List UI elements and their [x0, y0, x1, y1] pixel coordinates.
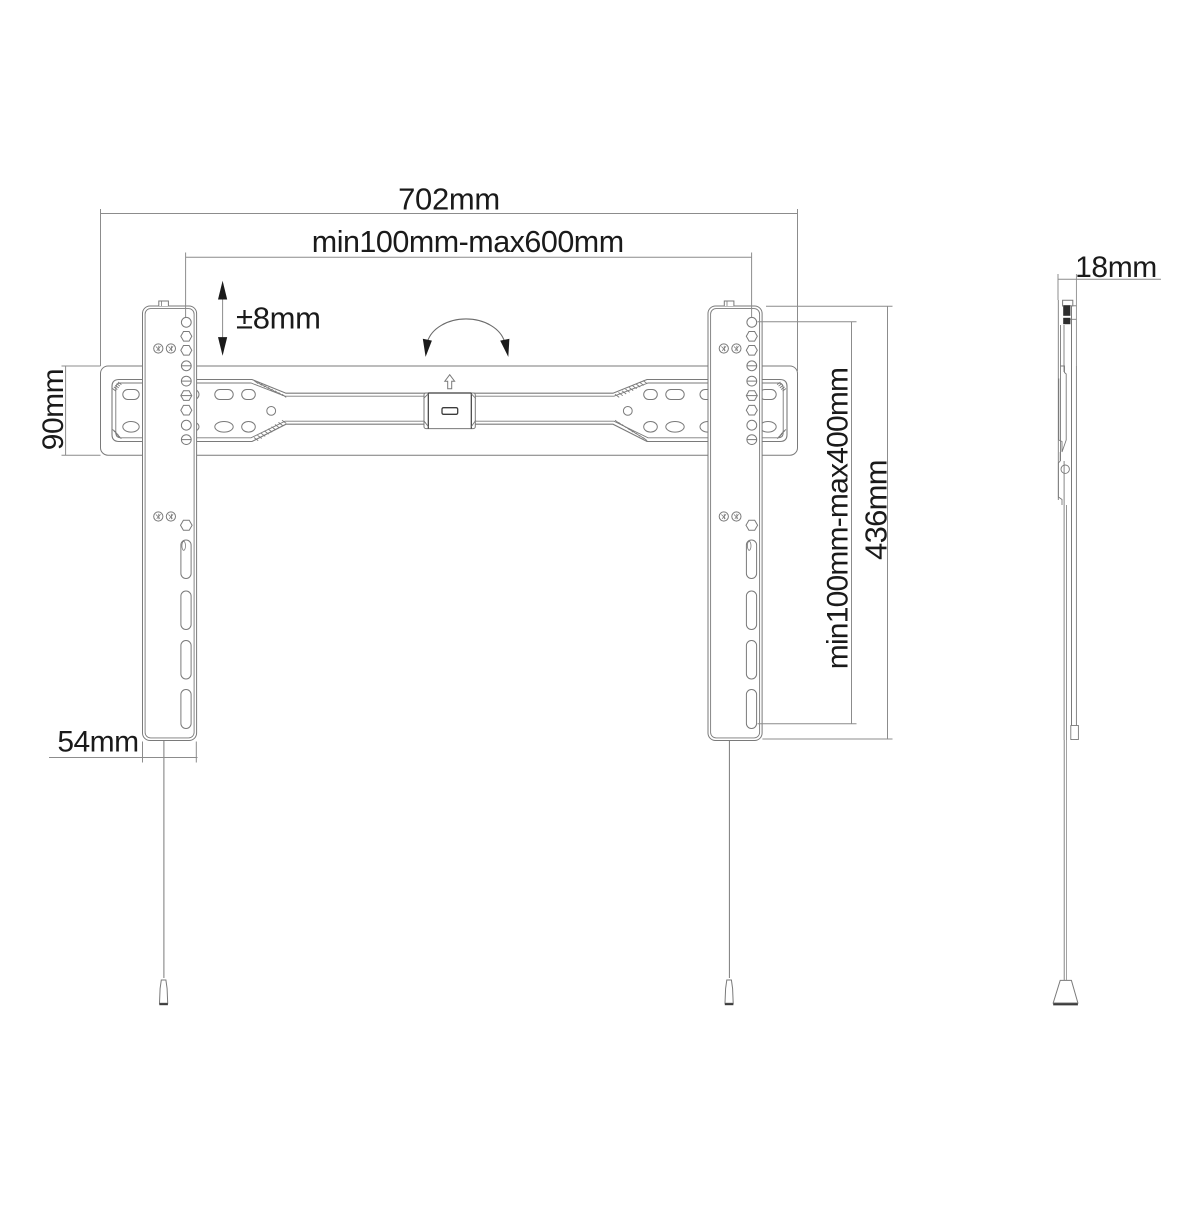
- svg-text:min100mm-max600mm: min100mm-max600mm: [312, 225, 624, 259]
- svg-text:54mm: 54mm: [57, 726, 138, 759]
- svg-text:702mm: 702mm: [398, 182, 500, 217]
- svg-text:90mm: 90mm: [37, 369, 70, 450]
- svg-text:18mm: 18mm: [1075, 251, 1157, 284]
- svg-text:±8mm: ±8mm: [236, 301, 321, 336]
- svg-text:436mm: 436mm: [859, 460, 894, 560]
- svg-text:min100mm-max400mm: min100mm-max400mm: [822, 368, 855, 669]
